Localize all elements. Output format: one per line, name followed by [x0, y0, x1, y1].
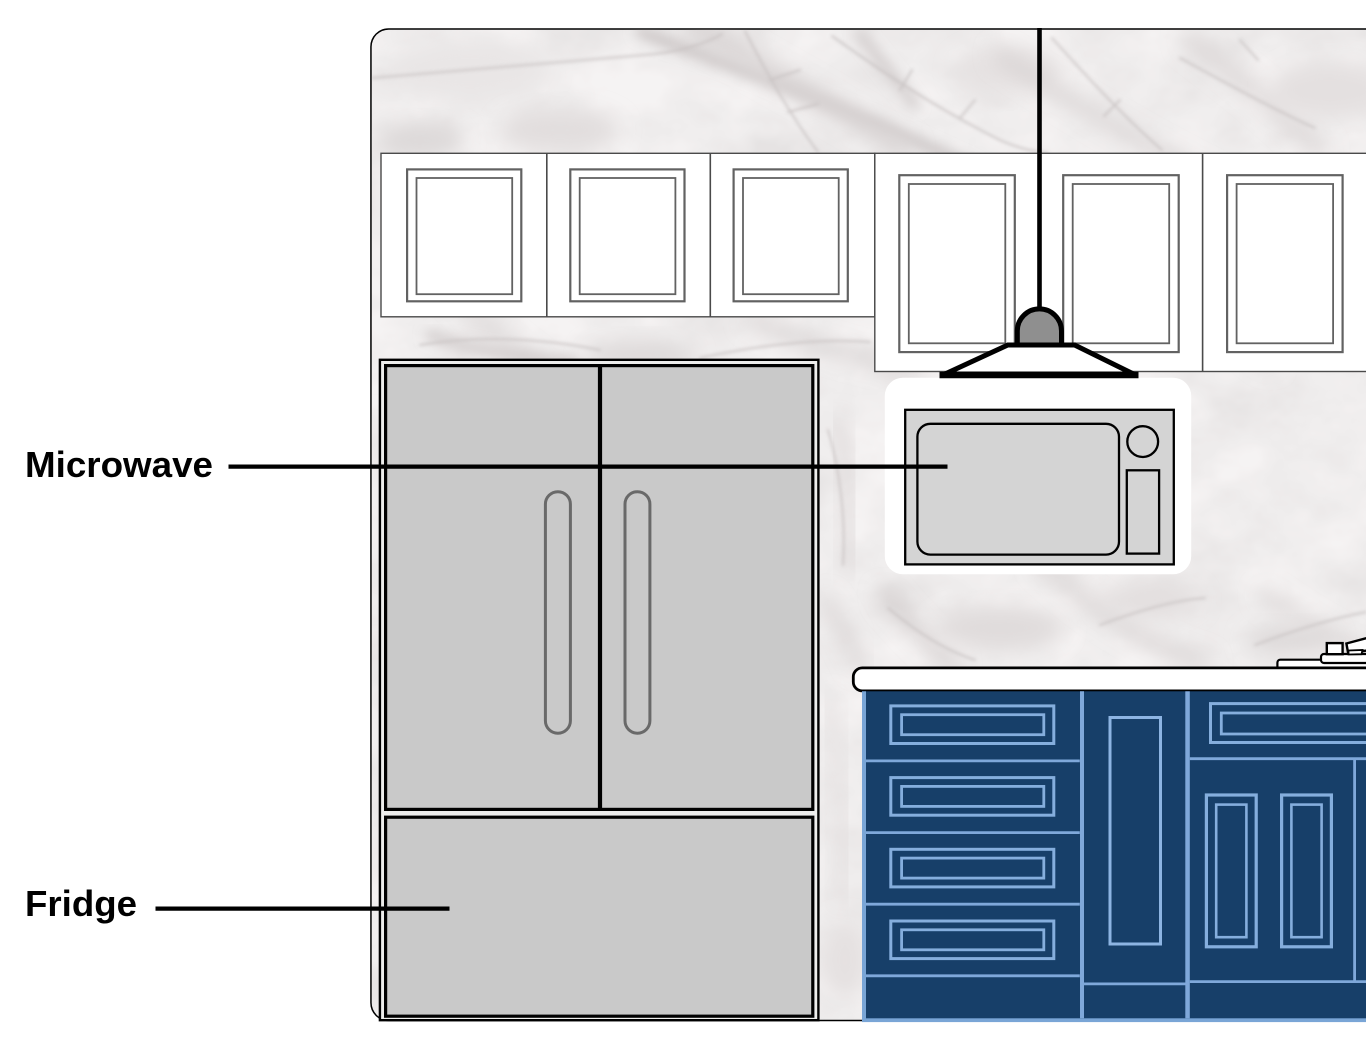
svg-text:Microwave: Microwave [25, 444, 213, 485]
svg-text:Fridge: Fridge [25, 883, 137, 924]
